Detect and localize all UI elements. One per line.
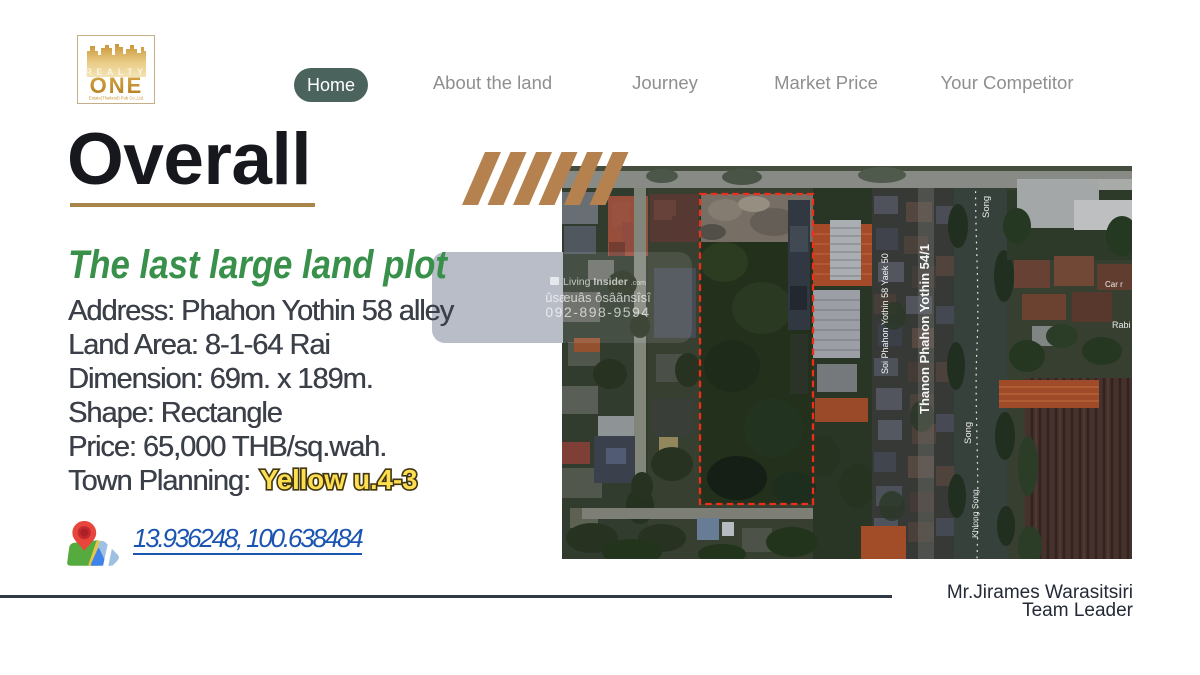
svg-text:ONE: ONE xyxy=(90,73,144,98)
svg-text:Soi Phahon Yothin 58 Yaek 50: Soi Phahon Yothin 58 Yaek 50 xyxy=(880,253,890,374)
svg-text:Thanon Phahon Yothin 54/1: Thanon Phahon Yothin 54/1 xyxy=(917,244,932,414)
svg-text:Estate(Thailand) Pub Co.,Ltd.: Estate(Thailand) Pub Co.,Ltd. xyxy=(89,96,144,101)
svg-text:Yellow u.4-3: Yellow u.4-3 xyxy=(260,464,417,495)
svg-text:Song: Song xyxy=(963,422,974,444)
svg-text:Song: Song xyxy=(981,196,992,218)
svg-text:Car r: Car r xyxy=(1105,280,1123,289)
svg-text:Khlong Song: Khlong Song xyxy=(970,489,980,538)
svg-text:Rabi: Rabi xyxy=(1112,320,1131,330)
